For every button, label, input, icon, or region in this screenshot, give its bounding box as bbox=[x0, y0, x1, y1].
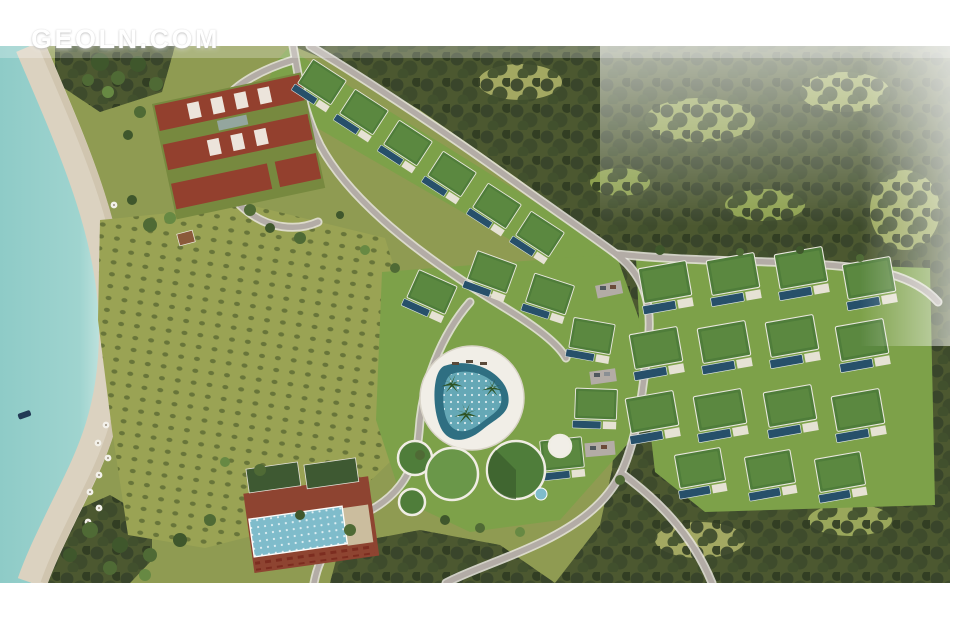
villa bbox=[829, 388, 887, 442]
villa bbox=[623, 390, 681, 444]
watermark-text: GEOLN.COM bbox=[31, 24, 220, 55]
villa bbox=[761, 384, 819, 438]
villa bbox=[704, 252, 762, 306]
villa bbox=[627, 326, 685, 380]
page: GEOLN.COM bbox=[0, 0, 955, 635]
villa bbox=[636, 260, 694, 314]
masterplan-render bbox=[0, 46, 950, 583]
haze-right-edge bbox=[860, 46, 950, 346]
villa bbox=[691, 388, 749, 442]
villa bbox=[572, 388, 617, 429]
villa bbox=[772, 246, 830, 300]
villa bbox=[742, 449, 797, 501]
villa bbox=[763, 314, 821, 368]
villa bbox=[695, 320, 753, 374]
villa bbox=[565, 317, 615, 364]
masterplan-svg bbox=[0, 46, 950, 583]
villa bbox=[672, 447, 727, 499]
villa bbox=[812, 451, 867, 503]
